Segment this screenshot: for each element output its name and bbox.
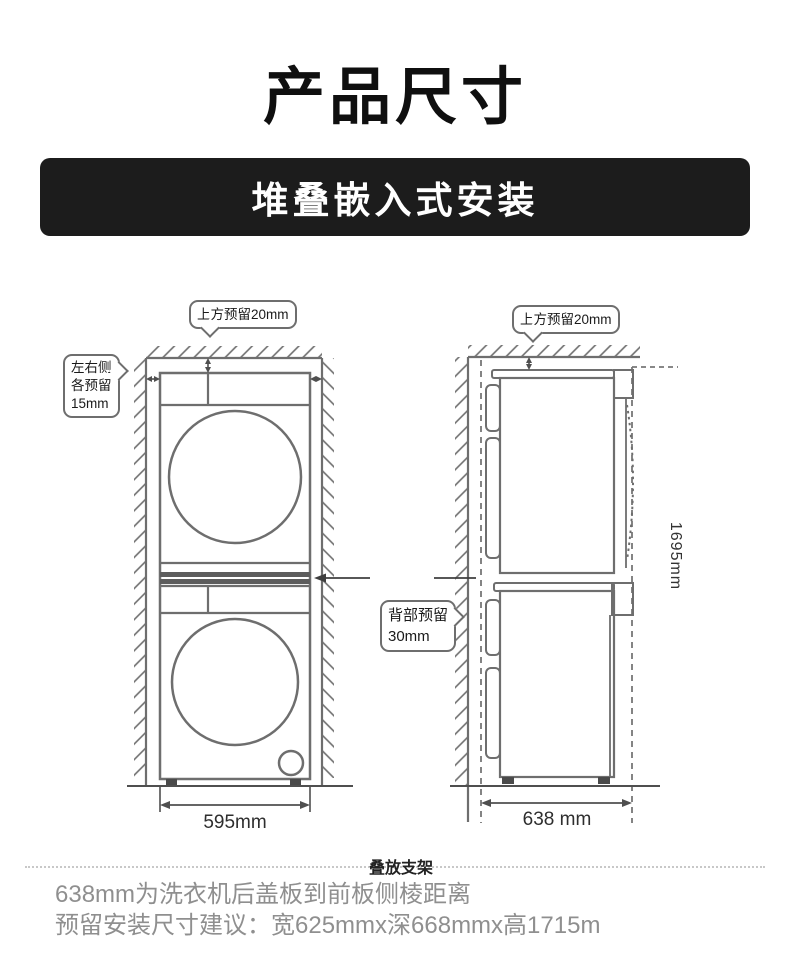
side-view-machines [486,370,633,784]
front-view-machines [160,373,310,785]
washer-side-body [500,591,614,777]
washer-door-circle [172,619,298,745]
stacking-bracket-bar-top [160,572,310,577]
width-arrow-left [160,801,170,809]
front-left-foot [166,779,177,785]
side-top-wall-hatch [468,345,640,357]
side-back-foot [502,777,514,784]
depth-arrow-left [481,799,491,807]
side-top-clearance-bubble: 上方预留20mm [512,305,620,334]
footnote-line1: 638mm为洗衣机后盖板到前板侧棱距离 [55,879,755,910]
section-banner: 堆叠嵌入式安装 [40,158,750,236]
product-dimensions-page: 产品尺寸 堆叠嵌入式安装 [0,0,790,959]
front-width-dimension-label: 595mm [175,812,295,834]
side-clearance-line2: 各预留 [71,377,112,395]
side-clearance-line1: 左右侧 [71,359,112,377]
dryer-back-bump-lower [486,438,500,558]
washer-filter-circle [279,751,303,775]
side-height-dimension-label: 1695mm [666,496,684,616]
section-banner-label: 堆叠嵌入式安装 [252,170,539,224]
front-left-wall-hatch [134,358,146,778]
front-right-foot [290,779,301,785]
washer-side-front-cap [612,583,633,615]
side-back-wall-hatch [455,357,468,787]
side-depth-dimension-label: 638 mm [497,809,617,831]
front-top-clearance-bubble: 上方预留20mm [189,300,297,329]
front-top-wall-hatch [146,346,322,358]
page-title: 产品尺寸 [0,56,790,140]
washer-back-bump-upper [486,600,500,655]
bracket-pointer-lines [314,574,476,583]
back-clearance-line1: 背部预留 [388,605,448,626]
side-clearance-line3: 15mm [71,395,112,413]
width-arrow-right [300,801,310,809]
washer-back-bump-lower [486,668,500,758]
washer-side-lid [494,583,614,591]
stacking-bracket-label: 叠放支架 [368,854,434,878]
dryer-back-bump-upper [486,385,500,431]
back-clearance-bubble: 背部预留 30mm [380,600,456,652]
installation-diagram: 上方预留20mm 左右侧 各预留 15mm 上方预留20mm 背部预留 30mm… [0,285,790,860]
side-view-diagram [450,345,678,823]
side-front-foot [598,777,610,784]
dryer-side-lid [492,370,614,378]
dryer-side-body [500,378,614,573]
dryer-door-circle [169,411,301,543]
stacking-bracket-bar-bottom [160,579,310,584]
bracket-arrowhead [314,574,326,583]
front-right-wall-hatch [322,358,334,778]
dryer-side-front-cap [614,370,633,398]
depth-arrow-right [622,799,632,807]
back-clearance-line2: 30mm [388,626,448,647]
side-clearance-bubble: 左右侧 各预留 15mm [63,354,120,418]
footnote-line2: 预留安装尺寸建议：宽625mmx深668mmx高1715m [55,910,755,941]
footnotes: 638mm为洗衣机后盖板到前板侧棱距离 预留安装尺寸建议：宽625mmx深668… [55,879,755,941]
